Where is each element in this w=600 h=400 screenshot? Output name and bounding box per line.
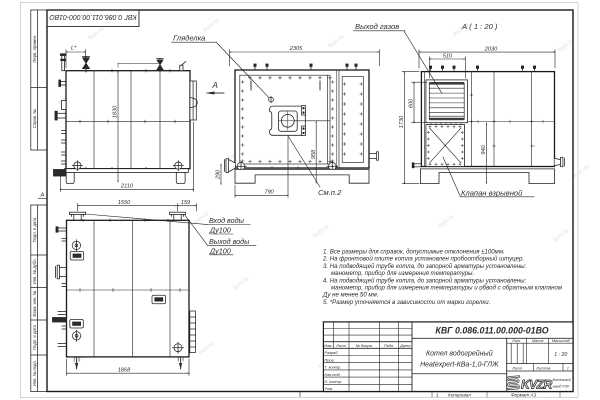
- svg-text:А ( 1 : 20 ): А ( 1 : 20 ): [461, 22, 498, 31]
- svg-text:Изм.: Изм.: [324, 343, 332, 348]
- svg-text:2110: 2110: [120, 184, 134, 190]
- svg-text:Н. контр.: Н. контр.: [324, 379, 342, 384]
- svg-text:Heatexpert-КВа-1,0-ГЛЖ: Heatexpert-КВа-1,0-ГЛЖ: [420, 362, 499, 369]
- svg-text:510: 510: [443, 53, 453, 59]
- svg-text:завод РЭП: завод РЭП: [552, 385, 570, 389]
- svg-text:Перв. примен.: Перв. примен.: [32, 35, 37, 63]
- svg-text:2. На фронтовой плите котла ус: 2. На фронтовой плите котла установлен п…: [322, 256, 524, 263]
- svg-text:№ докум.: № докум.: [356, 343, 373, 348]
- svg-text:Ду100: Ду100: [209, 246, 231, 255]
- svg-text:1730: 1730: [399, 115, 405, 128]
- svg-text:1830: 1830: [112, 105, 118, 118]
- svg-text:1. Все размеры для справок, до: 1. Все размеры для справок, допустимые о…: [323, 249, 505, 256]
- svg-text:Нач.отд.: Нач.отд.: [324, 372, 340, 377]
- svg-text:манометр, прибор для измерения: манометр, прибор для измерения температу…: [331, 285, 563, 292]
- svg-text:Подп.: Подп.: [384, 343, 394, 348]
- svg-text:Вход воды: Вход воды: [209, 216, 245, 225]
- svg-text:Пров.: Пров.: [324, 357, 334, 362]
- svg-text:Инв. № дубл.: Инв. № дубл.: [32, 258, 37, 284]
- svg-text:А: А: [212, 81, 218, 90]
- svg-text:1: 1: [436, 392, 439, 397]
- svg-text:Взам. инв. №: Взам. инв. №: [32, 290, 37, 316]
- svg-text:1 : 20: 1 : 20: [554, 352, 567, 358]
- svg-text:Лист: Лист: [335, 343, 347, 348]
- svg-text:Разраб.: Разраб.: [324, 350, 338, 355]
- svg-text:5. *Размер уточняется в зависи: 5. *Размер уточняется в зависимости от м…: [323, 299, 490, 306]
- svg-text:Формат А3: Формат А3: [511, 392, 537, 397]
- svg-text:2305: 2305: [289, 46, 303, 52]
- svg-text:600: 600: [409, 98, 415, 108]
- svg-text:Гляделка: Гляделка: [173, 34, 205, 43]
- svg-text:Клапан взрывной: Клапан взрывной: [461, 189, 523, 198]
- svg-text:Котельный: Котельный: [553, 378, 572, 382]
- svg-text:А: А: [40, 193, 45, 199]
- svg-text:Лит.: Лит.: [511, 338, 521, 343]
- svg-text:940: 940: [481, 144, 487, 154]
- svg-text:1: 1: [567, 366, 569, 371]
- svg-text:958: 958: [311, 149, 317, 159]
- svg-text:Дата: Дата: [399, 343, 411, 348]
- svg-text:290: 290: [216, 169, 222, 180]
- svg-text:Копировал: Копировал: [448, 392, 471, 397]
- svg-text:L*: L*: [71, 46, 77, 52]
- svg-text:Инв. № подл.: Инв. № подл.: [32, 360, 37, 386]
- svg-text:Утв.: Утв.: [324, 386, 333, 391]
- svg-text:3. На подводящей трубе котла,: 3. На подводящей трубе котла, до запорно…: [323, 263, 527, 270]
- svg-text:2030: 2030: [484, 46, 498, 52]
- svg-text:Справ. №: Справ. №: [32, 109, 37, 129]
- svg-text:Масса: Масса: [532, 338, 544, 343]
- svg-text:159: 159: [181, 200, 190, 206]
- svg-text:См.п.2: См.п.2: [318, 188, 342, 197]
- svg-text:Подп. и дата: Подп. и дата: [32, 217, 37, 242]
- svg-text:Выход газов: Выход газов: [355, 22, 399, 31]
- svg-text:Выход воды: Выход воды: [209, 237, 250, 246]
- svg-text:Подп. и дата: Подп. и дата: [32, 324, 37, 349]
- svg-text:Масштаб: Масштаб: [552, 338, 571, 343]
- svg-text:Ду не менее 50 мм.: Ду не менее 50 мм.: [322, 292, 378, 299]
- svg-text:1868: 1868: [118, 368, 131, 374]
- svg-text:Лист: Лист: [511, 366, 523, 371]
- svg-text:КВГ 0.086.011.00.000-01ВО: КВГ 0.086.011.00.000-01ВО: [435, 325, 548, 335]
- svg-text:Листов: Листов: [535, 366, 550, 371]
- svg-text:KVZR: KVZR: [521, 378, 553, 392]
- svg-text:790: 790: [264, 190, 274, 196]
- svg-text:4. На подводящей трубе котла,: 4. На подводящей трубе котла, до запорно…: [323, 277, 527, 284]
- svg-text:КВГ 0.086.011.00.000-01ВО: КВГ 0.086.011.00.000-01ВО: [49, 13, 137, 20]
- svg-text:Ду100: Ду100: [209, 226, 231, 235]
- svg-text:Т. контр.: Т. контр.: [324, 365, 341, 370]
- svg-text:манометр, прибор для измерения: манометр, прибор для измерения температу…: [331, 270, 474, 277]
- svg-text:Котел водогрейный: Котел водогрейный: [426, 350, 493, 358]
- svg-text:1550: 1550: [118, 200, 131, 206]
